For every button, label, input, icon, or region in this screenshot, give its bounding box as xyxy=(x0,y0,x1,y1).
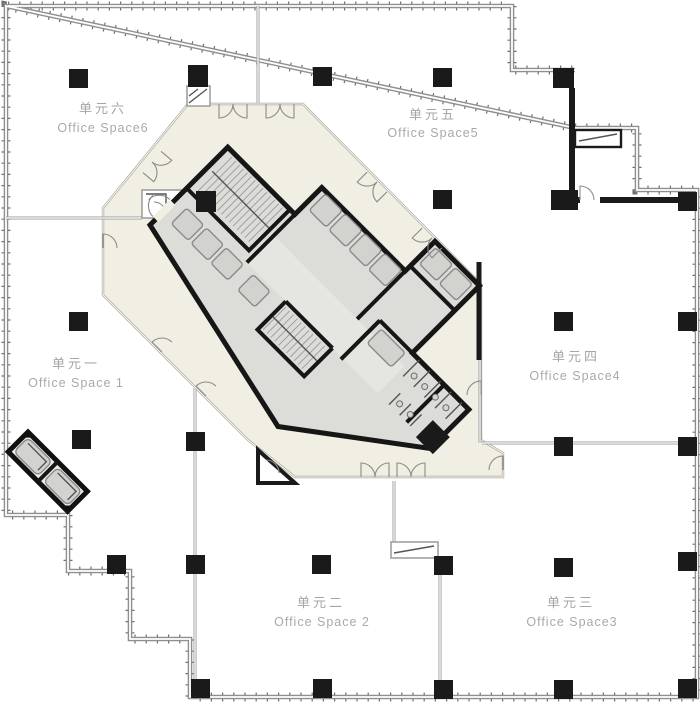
unit5-label-en: Office Space5 xyxy=(387,126,478,140)
unit1-label-en: Office Space 1 xyxy=(28,376,124,390)
floor-plan-svg: 单元六 Office Space6 单元五 Office Space5 单元四 … xyxy=(0,0,700,704)
unit5-label-zh: 单元五 xyxy=(409,107,457,122)
unit1-label-zh: 单元一 xyxy=(52,356,100,371)
unit3-label-zh: 单元三 xyxy=(547,595,595,610)
wall-closet xyxy=(575,130,621,147)
unit2-label-zh: 单元二 xyxy=(297,595,345,610)
unit6-label-en: Office Space6 xyxy=(57,121,148,135)
unit6-label-zh: 单元六 xyxy=(79,101,127,116)
floor-plan-canvas: 单元六 Office Space6 单元五 Office Space5 单元四 … xyxy=(0,0,700,704)
unit3-label-en: Office Space3 xyxy=(526,615,617,629)
unit4-label-en: Office Space4 xyxy=(529,369,620,383)
unit2-label-en: Office Space 2 xyxy=(274,615,370,629)
unit4-label-zh: 单元四 xyxy=(552,349,600,364)
